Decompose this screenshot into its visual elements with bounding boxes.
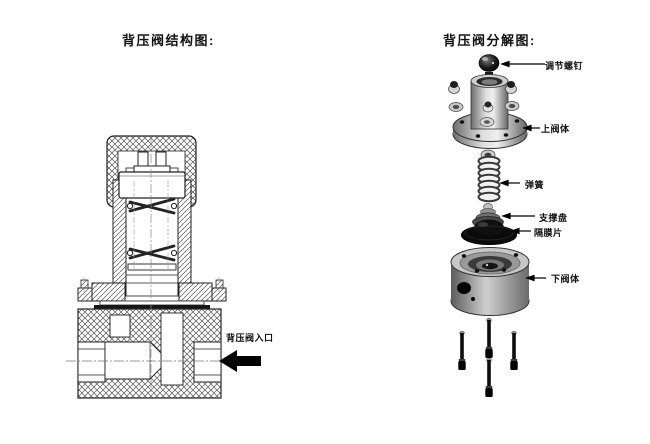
diaphragm-part xyxy=(462,220,517,245)
part-label-lower-valve-body: 下阀体 xyxy=(551,272,580,285)
side-port xyxy=(457,282,471,294)
piston-section xyxy=(119,172,185,198)
body-section xyxy=(78,309,221,398)
part-label-support-plate: 支撑盘 xyxy=(539,211,568,224)
support-plate-section xyxy=(100,301,204,305)
inlet-label: 背压阀入口 xyxy=(226,331,274,344)
bolt-center-front xyxy=(485,358,492,397)
bolt-center-back xyxy=(485,318,492,358)
spring-part xyxy=(479,157,500,201)
valve-diagram-page: 背压阀结构图: 背压阀分解图: xyxy=(0,0,650,444)
right-diagram-title: 背压阀分解图: xyxy=(443,30,536,49)
hex-nut-left xyxy=(449,103,463,112)
bolt-right xyxy=(510,331,517,370)
part-label-spring: 弹簧 xyxy=(525,178,544,191)
upper-valve-body-part xyxy=(449,75,528,161)
lower-valve-body-part xyxy=(451,248,529,316)
part-label-upper-valve-body: 上阀体 xyxy=(541,122,570,135)
part-label-adjusting-screw: 调节螺钉 xyxy=(545,59,583,72)
hex-nut-right xyxy=(505,102,519,111)
bolt-left xyxy=(458,331,465,370)
structure-diagram xyxy=(64,123,274,413)
inlet-arrow-icon xyxy=(219,350,261,372)
left-diagram-title: 背压阀结构图: xyxy=(122,30,215,49)
cap-nut-left xyxy=(449,81,460,94)
diaphragm-section xyxy=(94,305,210,309)
part-label-diaphragm: 隔膜片 xyxy=(534,226,563,239)
front-washer xyxy=(480,118,494,127)
